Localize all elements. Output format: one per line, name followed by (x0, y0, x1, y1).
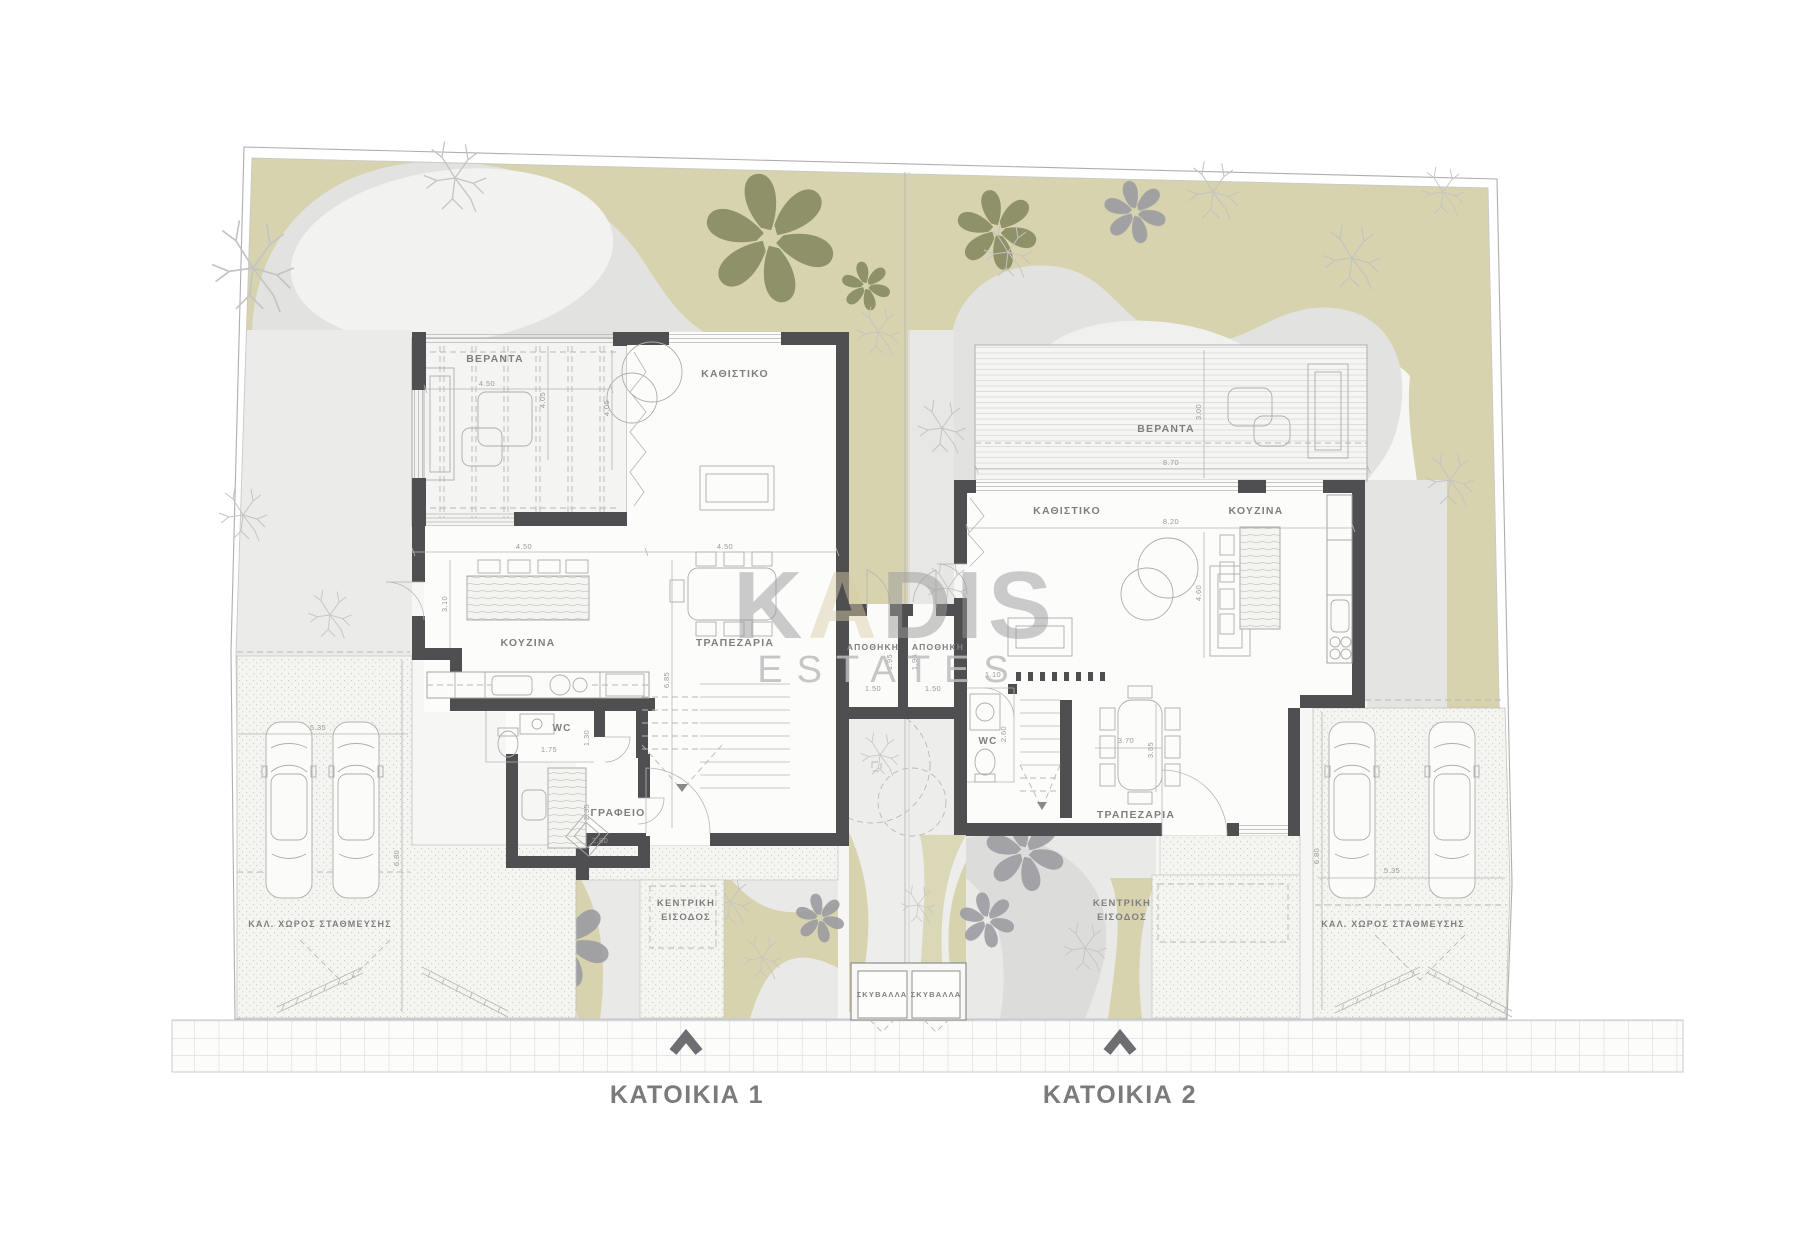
watermark-brand: KADIS (733, 552, 1057, 659)
dimension-26: 6.80 (1312, 848, 1321, 864)
dimension-20: 4.60 (1194, 585, 1203, 601)
dimension-1: 4.05 (538, 392, 547, 408)
dimension-7: 1.75 (541, 745, 557, 754)
car-1 (262, 722, 316, 898)
dimension-6: 6.85 (662, 672, 671, 688)
floor-plan-drawing: ΒΕΡΑΝΤΑΚΑΘΙΣΤΙΚΟΚΟΥΖΙΝΑΤΡΑΠΕΖΑΡΙΑWCΓΡΑΦΕ… (0, 0, 1803, 1255)
dimension-10: 2.80 (592, 836, 608, 845)
room-label-entrance-2b: ΕΙΣΟΔΟΣ (1097, 912, 1147, 923)
car-3 (1325, 722, 1379, 898)
kitchen-2-counter (1327, 495, 1352, 663)
room-label-garbage-2: ΣΚΥΒΑΛΛΑ (911, 990, 962, 999)
room-label-living-2: ΚΑΘΙΣΤΙΚΟ (1033, 505, 1101, 517)
dimension-0: 4.50 (479, 379, 495, 388)
dimension-18: 3.00 (1194, 404, 1203, 420)
room-label-garbage-1: ΣΚΥΒΑΛΛΑ (857, 990, 908, 999)
dimension-5: 3.10 (440, 596, 449, 612)
room-label-entrance-1a: ΚΕΝΤΡΙΚΗ (657, 898, 715, 909)
dimension-4: 4.50 (717, 542, 733, 551)
porch-2 (1160, 835, 1300, 875)
room-label-entrance-1b: ΕΙΣΟΔΟΣ (661, 912, 711, 923)
car-2 (329, 722, 383, 898)
dimension-22: 2.60 (999, 726, 1008, 742)
room-label-office-1: ΓΡΑΦΕΙΟ (591, 807, 646, 819)
dimension-17: 8.70 (1163, 458, 1179, 467)
car-4 (1425, 722, 1479, 898)
dimension-3: 4.50 (516, 542, 532, 551)
room-label-wc-2: WC (978, 736, 997, 747)
room-label-parking-2: ΚΑΛ. ΧΩΡΟΣ ΣΤΑΘΜΕΥΣΗΣ (1321, 919, 1465, 929)
dimension-8: 1.30 (582, 730, 591, 746)
dimension-12: 6.80 (392, 850, 401, 866)
room-label-veranda-1: ΒΕΡΑΝΤΑ (466, 353, 524, 365)
room-label-parking-1: ΚΑΛ. ΧΩΡΟΣ ΣΤΑΘΜΕΥΣΗΣ (248, 919, 392, 929)
room-label-kitchen-2: ΚΟΥΖΙΝΑ (1229, 505, 1284, 517)
dimension-24: 3.85 (1146, 742, 1155, 758)
dimension-9: 2.35 (582, 804, 591, 820)
site-plan-page: ΒΕΡΑΝΤΑΚΑΘΙΣΤΙΚΟΚΟΥΖΙΝΑΤΡΑΠΕΖΑΡΙΑWCΓΡΑΦΕ… (0, 0, 1803, 1255)
room-label-living-1: ΚΑΘΙΣΤΙΚΟ (701, 368, 769, 380)
room-label-kitchen-1: ΚΟΥΖΙΝΑ (501, 637, 556, 649)
watermark: KADIS ESTATES (733, 552, 1057, 691)
house-2-title: ΚΑΤΟΙΚΙΑ 2 (1043, 1081, 1197, 1109)
house-1-title: ΚΑΤΟΙΚΙΑ 1 (610, 1081, 764, 1109)
entrance-walk-2 (1152, 875, 1300, 1018)
dimension-25: 5.35 (1384, 866, 1400, 875)
room-label-wc-1: WC (552, 723, 571, 734)
sidewalk (172, 1020, 1683, 1072)
room-label-entrance-2a: ΚΕΝΤΡΙΚΗ (1093, 898, 1151, 909)
dimension-2: 4.05 (602, 400, 611, 416)
dimension-19: 8.20 (1163, 517, 1179, 526)
kitchen-1-counter (427, 672, 649, 698)
dimension-11: 5.35 (310, 723, 326, 732)
room-label-veranda-2: ΒΕΡΑΝΤΑ (1137, 423, 1195, 435)
dimension-23: 3.70 (1118, 736, 1134, 745)
room-label-dining-2: ΤΡΑΠΕΖΑΡΙΑ (1097, 809, 1175, 821)
watermark-sub: ESTATES (757, 649, 1023, 691)
